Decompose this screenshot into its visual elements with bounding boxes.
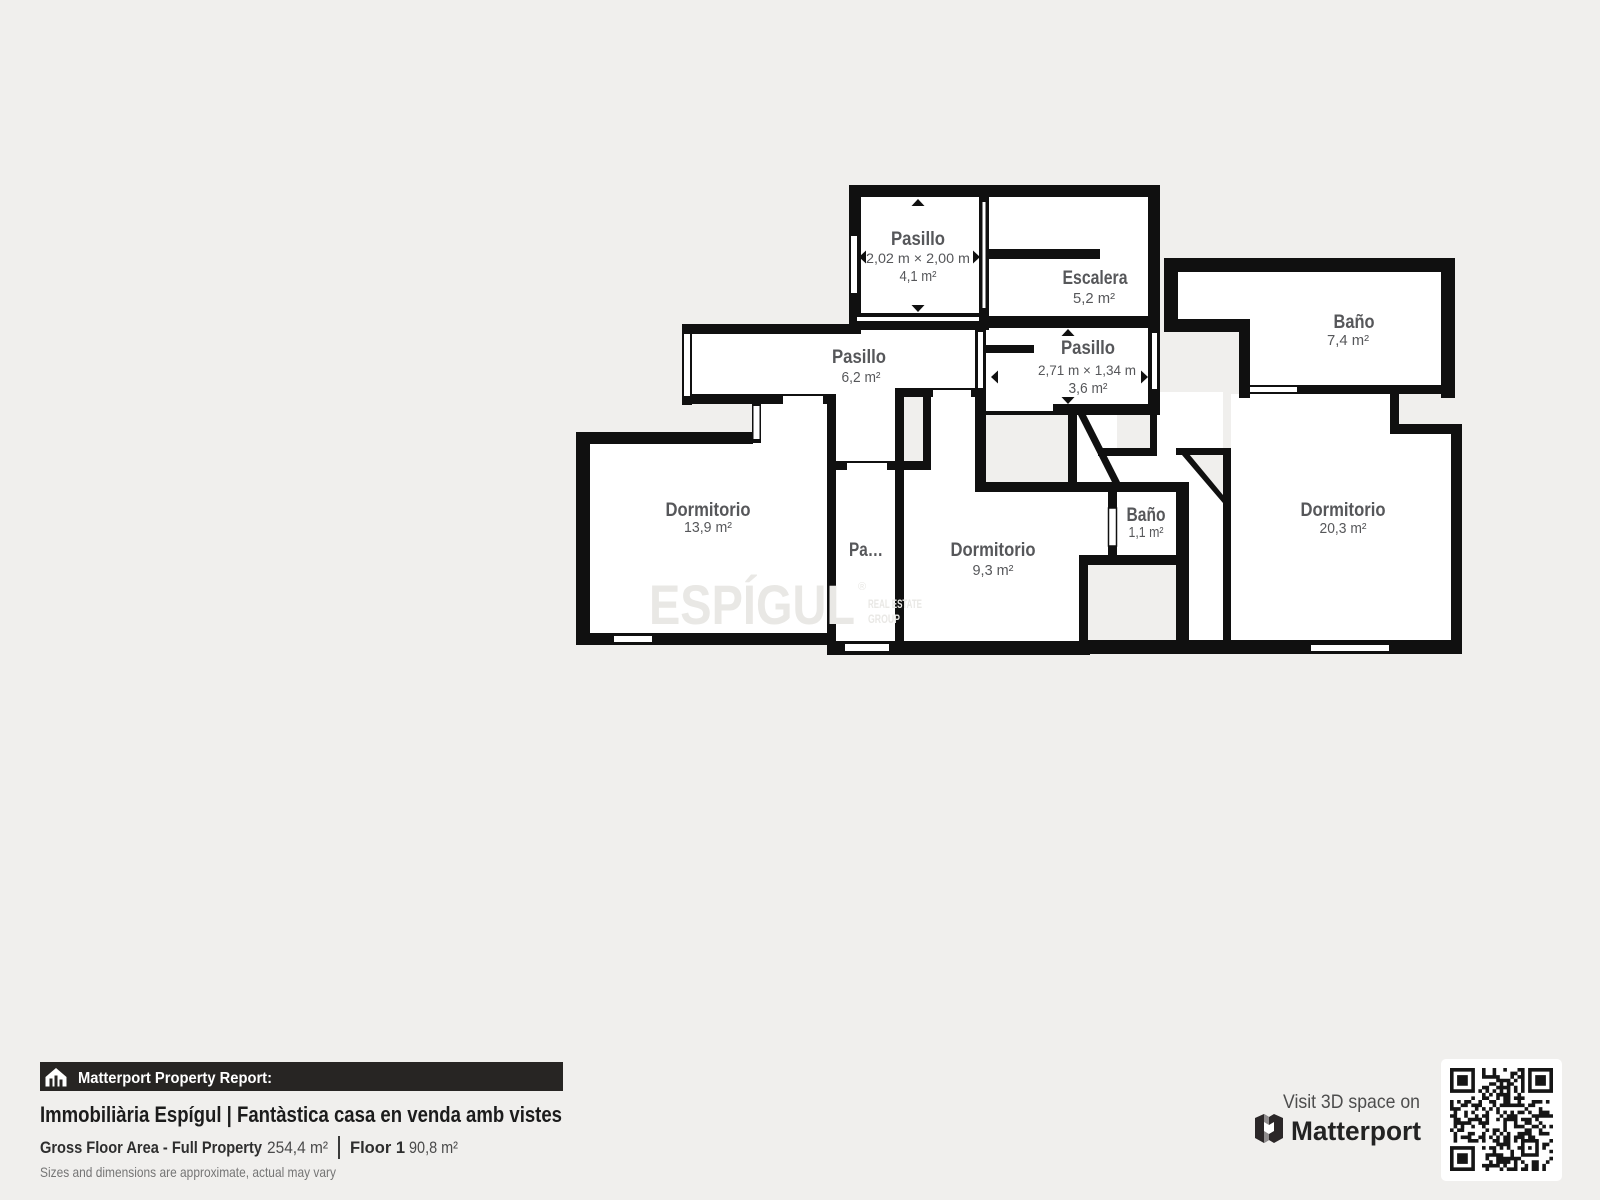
svg-text:Baño: Baño xyxy=(1127,504,1166,526)
svg-text:Dormitorio: Dormitorio xyxy=(951,539,1036,561)
svg-text:Pasillo: Pasillo xyxy=(832,346,886,368)
svg-text:7,4 m²: 7,4 m² xyxy=(1327,333,1369,349)
svg-text:REAL ESTATE: REAL ESTATE xyxy=(868,597,922,611)
svg-text:Floor 1: Floor 1 xyxy=(350,1138,405,1157)
svg-text:13,9 m²: 13,9 m² xyxy=(684,520,732,536)
svg-text:Matterport: Matterport xyxy=(1291,1116,1421,1146)
svg-text:20,3 m²: 20,3 m² xyxy=(1320,521,1367,537)
svg-text:ESPÍGUL: ESPÍGUL xyxy=(649,573,855,636)
svg-text:Visit 3D space on: Visit 3D space on xyxy=(1283,1091,1420,1113)
svg-text:GROUP: GROUP xyxy=(868,612,900,626)
svg-text:9,3 m²: 9,3 m² xyxy=(973,563,1014,579)
svg-text:6,2 m²: 6,2 m² xyxy=(842,370,881,386)
svg-text:3,6 m²: 3,6 m² xyxy=(1069,381,1108,397)
svg-text:Escalera: Escalera xyxy=(1063,267,1128,289)
svg-text:90,8 m²: 90,8 m² xyxy=(409,1138,458,1157)
svg-text:Gross Floor Area - Full Proper: Gross Floor Area - Full Property xyxy=(40,1138,262,1157)
svg-text:Pasillo: Pasillo xyxy=(891,228,945,250)
svg-text:1,1 m²: 1,1 m² xyxy=(1129,525,1164,541)
svg-text:2,71 m × 1,34 m: 2,71 m × 1,34 m xyxy=(1038,362,1136,378)
svg-text:Immobiliària Espígul | Fantàst: Immobiliària Espígul | Fantàstica casa e… xyxy=(40,1102,562,1127)
svg-text:Pa…: Pa… xyxy=(849,539,883,561)
svg-text:Sizes and dimensions are appro: Sizes and dimensions are approximate, ac… xyxy=(40,1164,336,1180)
svg-text:®: ® xyxy=(858,581,866,593)
svg-text:Matterport Property Report:: Matterport Property Report: xyxy=(78,1070,272,1087)
svg-text:4,1 m²: 4,1 m² xyxy=(900,269,937,285)
svg-text:Baño: Baño xyxy=(1334,311,1375,333)
svg-text:5,2 m²: 5,2 m² xyxy=(1073,291,1115,307)
svg-text:Dormitorio: Dormitorio xyxy=(666,499,751,521)
svg-text:254,4 m²: 254,4 m² xyxy=(267,1138,328,1157)
svg-text:Dormitorio: Dormitorio xyxy=(1301,499,1386,521)
svg-text:2,02 m × 2,00 m: 2,02 m × 2,00 m xyxy=(866,250,970,266)
svg-text:Pasillo: Pasillo xyxy=(1061,337,1115,359)
